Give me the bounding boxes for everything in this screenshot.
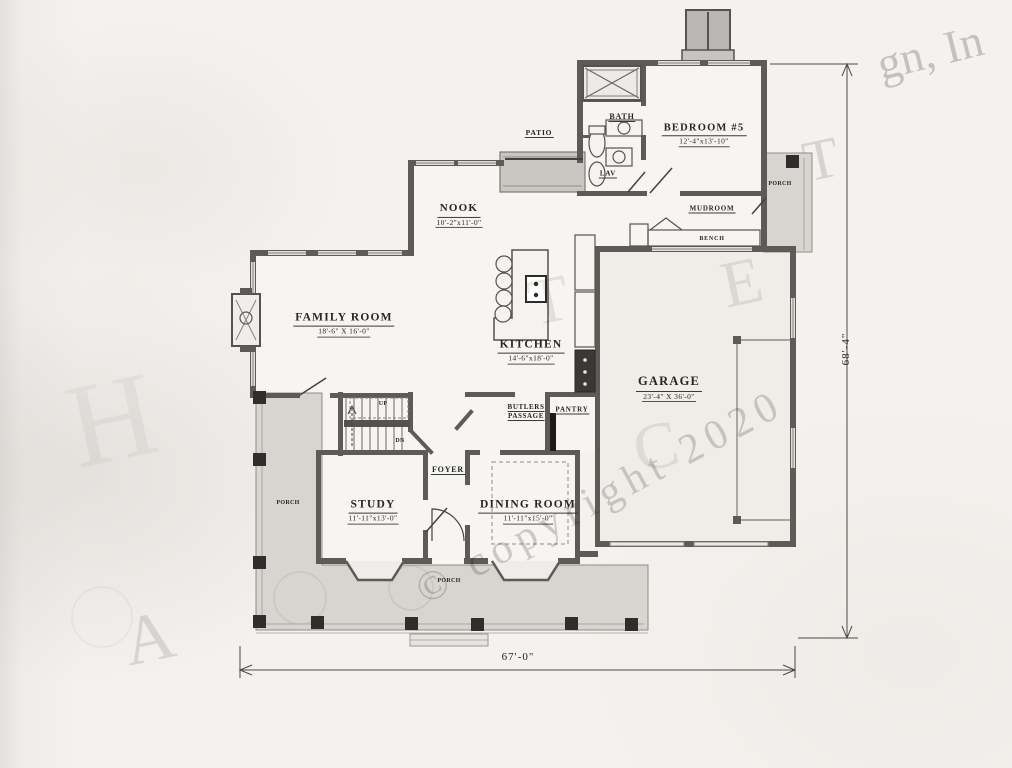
room-dims: 14'-6"x18'-0" <box>507 354 554 364</box>
room-label-family-room: FAMILY ROOM 18'-6" X 16'-0" <box>293 311 394 338</box>
label-patio: PATIO <box>525 128 554 138</box>
label-butlers-line1: BUTLERS <box>508 403 545 412</box>
room-name: NOOK <box>438 202 480 218</box>
room-dims: 11'-11"x13'-0" <box>348 514 399 524</box>
label-foyer: FOYER <box>431 465 465 475</box>
room-dims: 12'-4"x13'-10" <box>678 136 729 146</box>
label-butlers-line2: PASSAGE <box>508 412 545 421</box>
floor-plan-page: NOOK 10'-2"x11'-0" FAMILY ROOM 18'-6" X … <box>0 0 1012 768</box>
label-mudroom: MUDROOM <box>689 205 736 214</box>
label-bath: BATH <box>608 112 635 122</box>
room-dims: 23'-4" X 36'-0" <box>642 392 696 402</box>
label-porch-left: PORCH <box>275 500 300 506</box>
room-label-garage: GARAGE 23'-4" X 36'-0" <box>636 374 702 402</box>
room-dims: 10'-2"x11'-0" <box>436 218 483 228</box>
label-stairs-down: DN <box>394 438 405 444</box>
room-label-bedroom-5: BEDROOM #5 12'-4"x13'-10" <box>662 121 747 147</box>
room-name: FAMILY ROOM <box>293 311 394 327</box>
label-pantry: PANTRY <box>554 406 589 415</box>
room-dims: 18'-6" X 16'-0" <box>317 327 371 337</box>
label-lav: LAV <box>599 170 617 179</box>
room-label-study: STUDY 11'-11"x13'-0" <box>348 498 399 525</box>
room-name: GARAGE <box>636 374 702 392</box>
room-dims: 11'-11"x15'-0" <box>503 514 554 524</box>
cooktop <box>526 276 546 302</box>
label-porch-right: PORCH <box>767 181 792 187</box>
kitchen-island <box>494 250 548 340</box>
label-bench: BENCH <box>698 236 725 242</box>
room-label-dining-room: DINING ROOM 11'-11"x15'-0" <box>478 498 578 525</box>
label-stairs-up: UP <box>378 401 389 407</box>
room-name: STUDY <box>349 498 398 514</box>
chimney <box>682 10 734 62</box>
fireplace <box>232 288 260 352</box>
label-porch-bottom: PORCH <box>436 578 461 584</box>
label-butlers-passage: BUTLERS PASSAGE <box>507 403 546 421</box>
room-label-kitchen: KITCHEN 14'-6"x18'-0" <box>498 338 565 365</box>
room-name: DINING ROOM <box>478 498 578 514</box>
overall-height-dimension: 68'-4" <box>840 333 852 366</box>
room-name: KITCHEN <box>498 338 565 354</box>
room-label-nook: NOOK 10'-2"x11'-0" <box>436 202 483 228</box>
room-name: BEDROOM #5 <box>662 121 747 136</box>
overall-width-dimension: 67'-0" <box>502 651 535 663</box>
pantry-door <box>550 413 556 451</box>
